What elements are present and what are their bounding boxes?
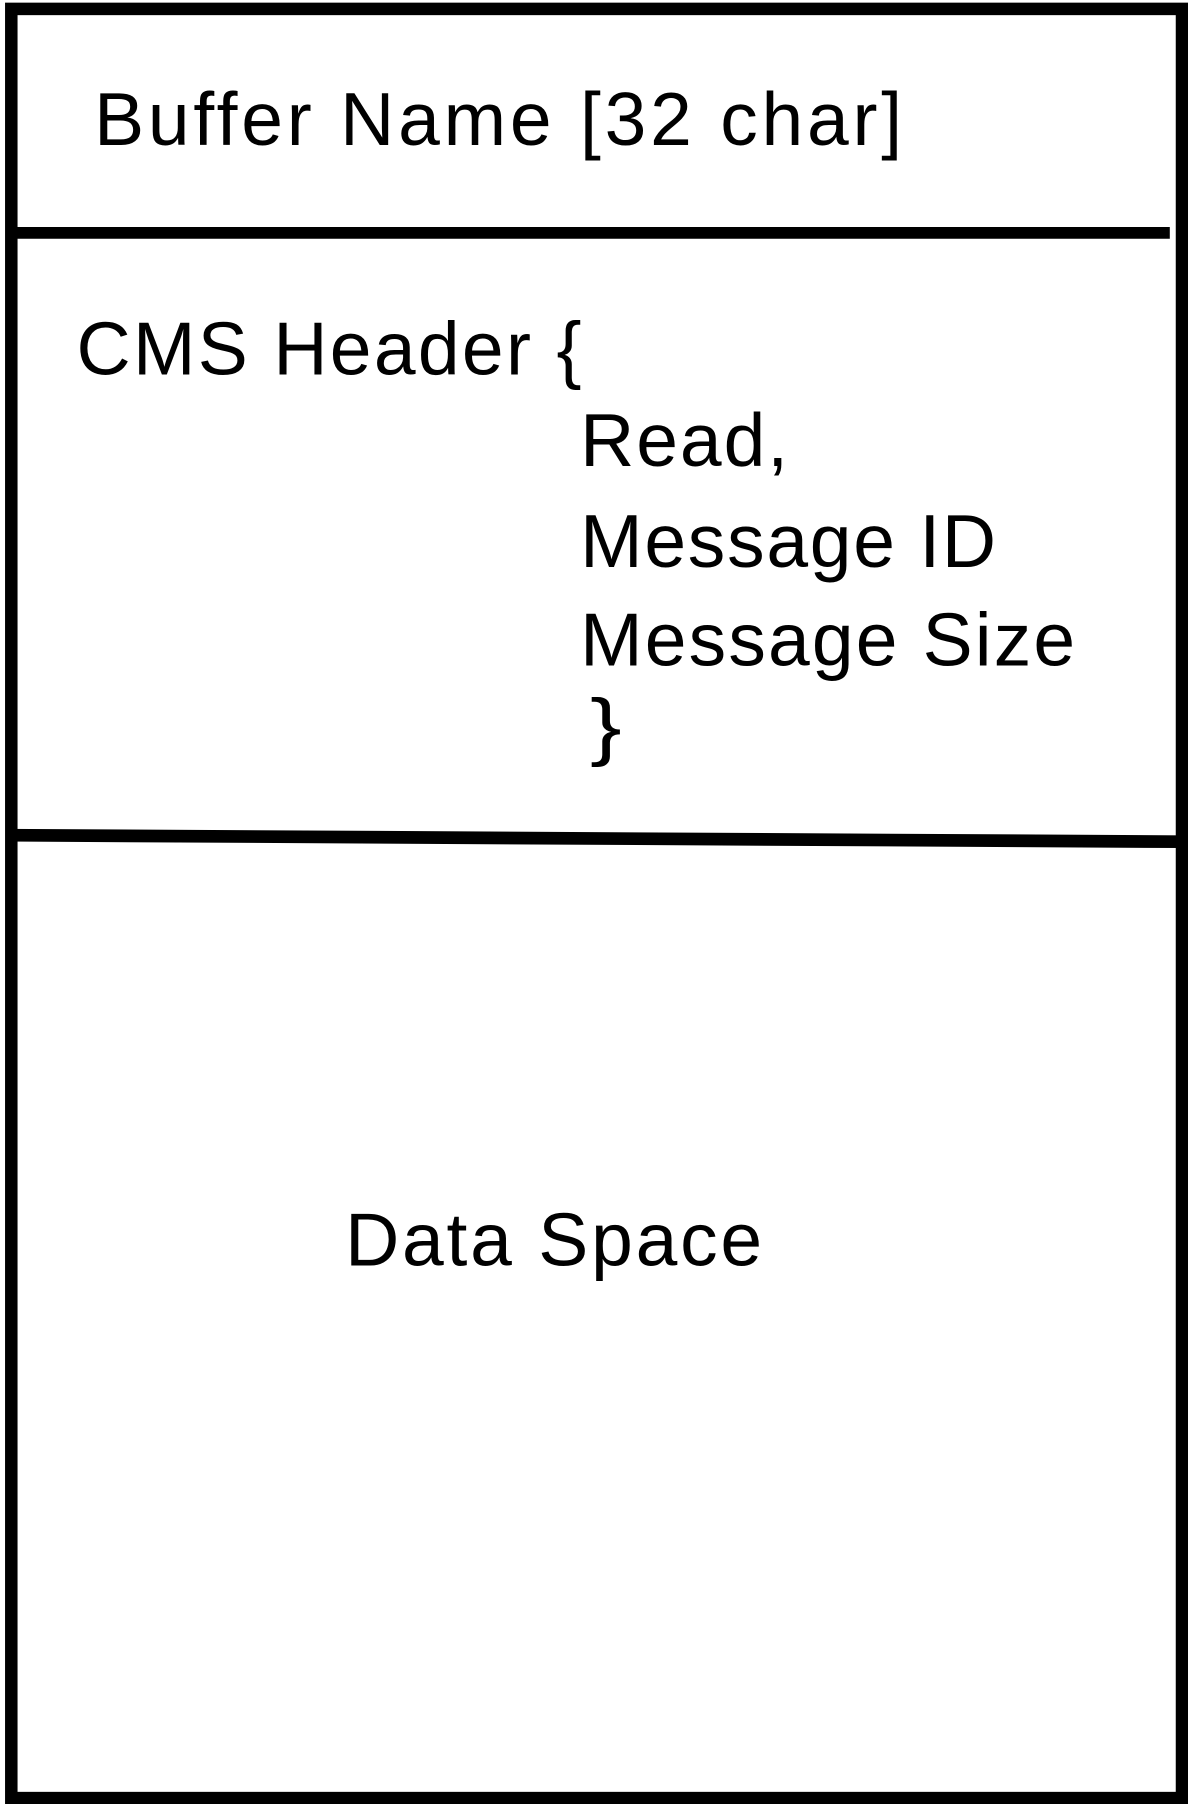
svg-text:Data Space: Data Space [345, 1198, 762, 1282]
svg-text:}: } [590, 684, 622, 768]
svg-text:Read,: Read, [580, 398, 788, 482]
svg-text:CMS Header {: CMS Header { [77, 307, 582, 391]
svg-text:Message ID: Message ID [580, 499, 996, 583]
svg-text:Message Size: Message Size [580, 597, 1075, 681]
